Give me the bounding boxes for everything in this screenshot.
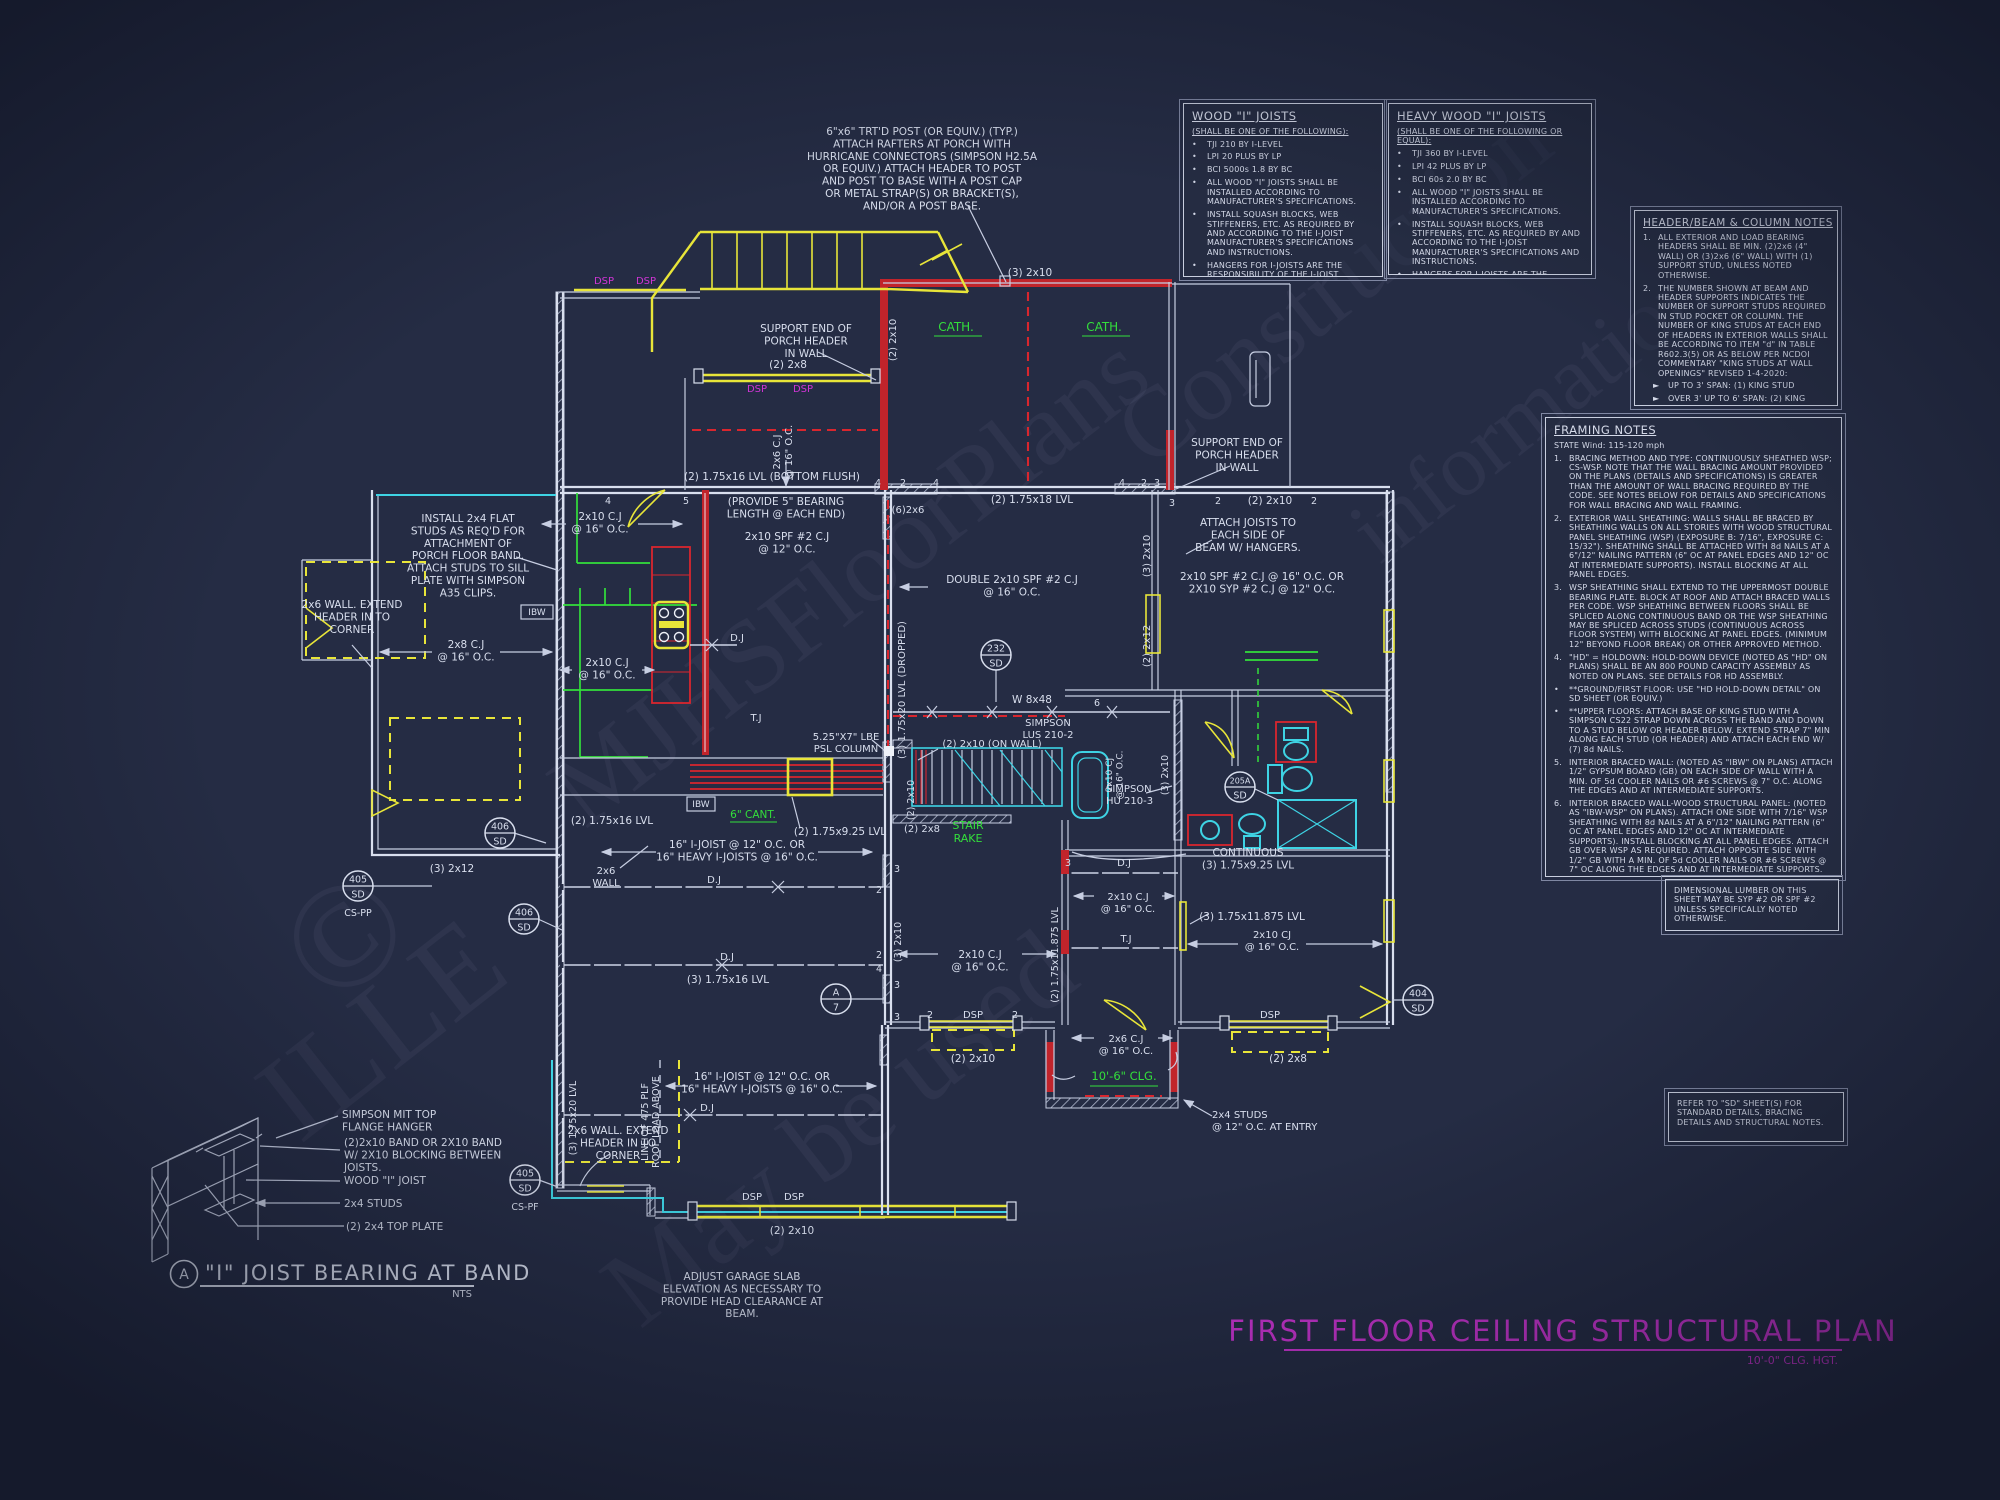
plan-label: DSP — [1260, 1010, 1280, 1021]
note-item: 2.EXTERIOR WALL SHEATHING: WALLS SHALL B… — [1554, 514, 1833, 580]
bubble-text: 232 — [987, 644, 1005, 655]
plan-label: 2x8 C.J@ 16" O.C. — [437, 639, 494, 663]
bubble-text: SD — [989, 659, 1002, 670]
bubble-text: 205A — [1230, 777, 1251, 786]
bubble-text: SD — [517, 923, 530, 934]
plan-label: CATH. — [1086, 320, 1122, 334]
plan-label: T.J — [749, 713, 761, 724]
detail-callout-bubble: 405SDCS-PF — [510, 1165, 540, 1213]
plan-label: STAIRRAKE — [952, 819, 984, 845]
plan-label: (3) 2x10 — [1008, 267, 1052, 279]
bubble-text: SD — [493, 837, 506, 848]
note-item: •INSTALL SQUASH BLOCKS, WEB STIFFENERS, … — [1397, 220, 1583, 267]
note-item: 2.THE NUMBER SHOWN AT BEAM AND HEADER SU… — [1643, 284, 1829, 378]
plan-label: 4 — [1119, 478, 1125, 489]
note-subtitle: (SHALL BE ONE OF THE FOLLOWING OR EQUAL)… — [1397, 127, 1583, 146]
note-list: •TJI 210 BY I-LEVEL•LPI 20 PLUS BY LP•BC… — [1192, 140, 1374, 278]
plan-label: 2 — [1311, 496, 1317, 507]
note-item: •HANGERS FOR I-JOISTS ARE THE RESPONSIBI… — [1192, 261, 1374, 277]
plan-label: 3 — [1169, 498, 1175, 509]
plan-label: (3) 2x10 — [893, 922, 904, 962]
notes-framing: FRAMING NOTES STATE Wind: 115-120 mph 1.… — [1545, 417, 1842, 877]
bubble-text: CS-PP — [344, 908, 372, 919]
plan-label: (3) 1.75x11.875 LVL — [1199, 911, 1305, 923]
note-item: 3.WSP SHEATHING SHALL EXTEND TO THE UPPE… — [1554, 583, 1833, 649]
plan-label: 3 — [894, 1012, 900, 1023]
plan-label: SUPPORT END OFPORCH HEADERIN WALL — [760, 323, 852, 360]
note-list: 1.ALL EXTERIOR AND LOAD BEARING HEADERS … — [1643, 233, 1829, 378]
sheet-title-sub: 10'-0" CLG. HGT. — [1747, 1354, 1838, 1367]
detail-scale: NTS — [452, 1289, 472, 1300]
plan-label: 2x10 SPF #2 C.J @ 16" O.C. OR2X10 SYP #2… — [1180, 571, 1344, 595]
plan-label: 16" I-JOIST @ 12" O.C. OR16" HEAVY I-JOI… — [681, 1071, 843, 1095]
note-item: ►UP TO 3' SPAN: (1) KING STUD — [1653, 381, 1829, 390]
note-item: •**UPPER FLOORS: ATTACH BASE OF KING STU… — [1554, 707, 1833, 754]
plan-label: (2) 1.75x9.25 LVL — [794, 826, 886, 838]
note-item: •BCI 60s 2.0 BY BC — [1397, 175, 1583, 184]
note-subtitle: (SHALL BE ONE OF THE FOLLOWING): — [1192, 127, 1374, 136]
bubble-text: 405 — [349, 875, 367, 886]
plan-label: (2) 2x8 — [1269, 1053, 1307, 1065]
plan-label: 5.25"X7" LBEPSL COLUMN — [813, 732, 880, 755]
detail-label: 2x4 STUDS — [344, 1198, 403, 1210]
plan-label: (2) 2x8 — [769, 359, 807, 371]
plan-label: (3) 2x12 — [430, 863, 474, 875]
plan-label: D.J — [707, 875, 721, 886]
note-item: •BCI 5000s 1.8 BY BC — [1192, 165, 1374, 174]
plan-label: 2 — [1141, 478, 1147, 489]
plan-label: (PROVIDE 5" BEARINGLENGTH @ EACH END) — [727, 496, 845, 520]
plan-label: (2) 2x8 — [904, 824, 940, 835]
detail-callout-bubble: 406SD — [509, 904, 539, 934]
notes-header-beam-column: HEADER/BEAM & COLUMN NOTES 1.ALL EXTERIO… — [1634, 210, 1838, 406]
note-item: 5.INTERIOR BRACED WALL: (NOTED AS "IBW" … — [1554, 758, 1833, 796]
note-item: 1.ALL EXTERIOR AND LOAD BEARING HEADERS … — [1643, 233, 1829, 280]
plan-label: IBW — [528, 608, 546, 618]
plan-label: 2 — [876, 885, 882, 896]
plan-label: 2x10 C.J@ 16" O.C. — [1101, 892, 1156, 915]
note-item: •ALL WOOD "I" JOISTS SHALL BE INSTALLED … — [1192, 178, 1374, 206]
plan-label: IBW — [692, 800, 710, 810]
note-dimensional-lumber: DIMENSIONAL LUMBER ON THIS SHEET MAY BE … — [1665, 879, 1839, 931]
bubble-text: 406 — [515, 908, 533, 919]
plan-label: (2) 2x10 — [906, 780, 917, 820]
plan-label: (2) 2x12 — [1142, 625, 1153, 667]
detail-callout-bubble: 406SD — [485, 818, 515, 848]
plan-label: CONTINUOUS(3) 1.75x9.25 LVL — [1202, 847, 1294, 871]
note-item: •ALL WOOD "I" JOISTS SHALL BE INSTALLED … — [1397, 188, 1583, 216]
plan-label: D.J — [730, 633, 744, 644]
plan-label: 6" CANT. — [730, 809, 776, 821]
plan-label: 5 — [683, 496, 689, 507]
plan-label: 2x6 C.J@ 16" O.C. — [1099, 1034, 1154, 1057]
note-text: REFER TO "SD" SHEET(S) FOR STANDARD DETA… — [1677, 1099, 1835, 1127]
plan-label: SUPPORT END OFPORCH HEADERIN WALL — [1191, 437, 1283, 474]
plan-label: DSP — [784, 1192, 804, 1203]
plan-label: (2) 2x10 — [1248, 495, 1292, 507]
note-list: •TJI 360 BY I-LEVEL•LPI 42 PLUS BY LP•BC… — [1397, 149, 1583, 275]
detail-title: "I" JOIST BEARING AT BAND — [205, 1261, 531, 1285]
plan-label: 2 — [927, 1010, 933, 1021]
plan-label: 4 — [875, 478, 881, 489]
plan-label: D.J — [720, 952, 734, 963]
plan-label: 10'-6" CLG. — [1091, 1069, 1156, 1083]
notes-wood-i-joists: WOOD "I" JOISTS (SHALL BE ONE OF THE FOL… — [1183, 103, 1383, 277]
drawing-sheet: ©MJHSFloorPlansConstructioninformationMa… — [0, 0, 2000, 1500]
plan-label: 2x10 C.J@ 16" O.C. — [951, 949, 1008, 973]
plan-label: 2 — [876, 950, 882, 961]
note-item: •TJI 210 BY I-LEVEL — [1192, 140, 1374, 149]
detail-label: WOOD "I" JOIST — [344, 1175, 427, 1187]
plan-label: 2x6 WALL. EXTENDHEADER IN TOCORNER — [302, 599, 403, 636]
plan-label: 4 — [876, 964, 882, 975]
note-item: •LPI 42 PLUS BY LP — [1397, 162, 1583, 171]
plan-label: D.J — [700, 1103, 714, 1114]
bubble-text: A — [833, 988, 840, 999]
plan-label: 2x10 CJ@ 16" O.C. — [1245, 930, 1300, 953]
plan-label: (3) 1.75x16 LVL — [687, 974, 769, 986]
sheet-title: FIRST FLOOR CEILING STRUCTURAL PLAN — [1228, 1314, 1897, 1348]
note-title: HEAVY WOOD "I" JOISTS — [1397, 110, 1583, 124]
bubble-text: 404 — [1409, 989, 1427, 1000]
note-item: 1.BRACING METHOD AND TYPE: CONTINUOUSLY … — [1554, 454, 1833, 511]
plan-label: T.J — [1119, 934, 1131, 945]
detail-callout-bubble: 205ASD — [1225, 772, 1255, 802]
plan-label: CATH. — [938, 320, 974, 334]
post-note: 6"x6" TRT'D POST (OR EQUIV.) (TYP.)ATTAC… — [807, 126, 1038, 212]
plan-label: DSP — [594, 276, 614, 287]
plan-label: 6 — [1094, 698, 1100, 709]
plan-label: DSP — [963, 1010, 983, 1021]
detail-callout-bubble: 232SD — [981, 640, 1011, 670]
plan-label: DSP — [793, 384, 813, 395]
plan-label: (2) 1.75x18 LVL — [991, 494, 1073, 506]
plan-label: (3) 1.75x20 LVL — [568, 1080, 579, 1155]
plan-label: 2 — [1215, 496, 1221, 507]
plan-label: 2 — [1012, 1010, 1018, 1021]
plan-label: (2) 2x10 — [770, 1225, 814, 1237]
plan-label: W 8x48 — [1012, 694, 1052, 706]
bubble-text: 7 — [833, 1003, 839, 1014]
note-item: •INSTALL SQUASH BLOCKS, WEB STIFFENERS, … — [1192, 210, 1374, 257]
plan-label: 3 — [1154, 478, 1160, 489]
note-list: 1.BRACING METHOD AND TYPE: CONTINUOUSLY … — [1554, 454, 1833, 875]
bubble-text: 405 — [516, 1169, 534, 1180]
bubble-text: SD — [351, 890, 364, 901]
note-subtitle: STATE Wind: 115-120 mph — [1554, 441, 1833, 450]
plan-label: 4 — [605, 496, 611, 507]
detail-bubble-letter: A — [179, 1267, 189, 1283]
plan-label: DSP — [742, 1192, 762, 1203]
plan-label: LINE OF 475 PLFROOF LOAD ABOVE — [640, 1076, 662, 1168]
plan-label: D.J — [1117, 858, 1131, 869]
detail-label: SIMPSON MIT TOPFLANGE HANGER — [342, 1109, 436, 1133]
note-item: ►OVER 3' UP TO 6' SPAN: (2) KING STUDS — [1653, 394, 1829, 406]
plan-label: (2) 2x10 — [951, 1053, 995, 1065]
detail-callout-bubble: 404SD — [1403, 985, 1433, 1015]
plan-label: (3) 2x10 — [1160, 755, 1171, 795]
bubble-text: SD — [518, 1184, 531, 1195]
bubble-text: 406 — [491, 822, 509, 833]
plan-label: 3 — [894, 864, 900, 875]
plan-label: 2x10 C.J@ 16" O.C. — [571, 511, 628, 535]
bubble-text: SD — [1233, 791, 1246, 802]
plan-label: ATTACH JOISTS TOEACH SIDE OFBEAM W/ HANG… — [1195, 517, 1301, 554]
plan-label: (3) 2x10 — [1142, 535, 1153, 577]
plan-label: (3) 1.75x20 LVL (DROPPED) — [897, 621, 908, 759]
plan-label: 16" I-JOIST @ 12" O.C. OR16" HEAVY I-JOI… — [656, 839, 818, 863]
detail-label: (2) 2x4 TOP PLATE — [346, 1221, 443, 1233]
note-title: HEADER/BEAM & COLUMN NOTES — [1643, 217, 1829, 229]
plan-label: (6)2x6 — [892, 505, 925, 516]
plan-label: (2) 1.75x16 LVL — [571, 815, 653, 827]
note-item: •**GROUND/FIRST FLOOR: USE "HD HOLD-DOWN… — [1554, 685, 1833, 704]
plan-label: 4 — [933, 478, 939, 489]
plan-label: DSP — [636, 276, 656, 287]
note-list: ►UP TO 3' SPAN: (1) KING STUD►OVER 3' UP… — [1653, 381, 1829, 406]
plan-label: 2 — [900, 478, 906, 489]
note-item: 6.INTERIOR BRACED WALL-WOOD STRUCTURAL P… — [1554, 799, 1833, 875]
plan-label: 3 — [894, 980, 900, 991]
note-refer-sd: REFER TO "SD" SHEET(S) FOR STANDARD DETA… — [1668, 1092, 1844, 1142]
notes-heavy-wood-i-joists: HEAVY WOOD "I" JOISTS (SHALL BE ONE OF T… — [1388, 103, 1592, 275]
detail-callout-bubble: A7 — [821, 984, 851, 1014]
plan-label: 2x4 STUDS@ 12" O.C. AT ENTRY — [1212, 1110, 1318, 1133]
plan-label: 2x10 C.J@ 16" O.C. — [578, 657, 635, 681]
note-item: 4."HD" = HOLDOWN: HOLD-DOWN DEVICE (NOTE… — [1554, 653, 1833, 681]
plan-label: 2x6WALL — [592, 866, 620, 889]
plan-label: DSP — [747, 384, 767, 395]
plan-label: SIMPSONLUS 210-2 — [1023, 718, 1074, 741]
bubble-text: CS-PF — [511, 1202, 538, 1213]
note-item: •LPI 20 PLUS BY LP — [1192, 152, 1374, 161]
plan-label: INSTALL 2x4 FLATSTUDS AS REQ'D FORATTACH… — [407, 513, 529, 599]
detail-label: (2)2x10 BAND OR 2X10 BANDW/ 2X10 BLOCKIN… — [343, 1137, 502, 1174]
plan-label: (2) 2x10 — [888, 319, 899, 361]
plan-label: (2) 1.75x16 LVL (BOTTOM FLUSH) — [684, 471, 860, 483]
plan-label: (2) 2x10 (ON WALL) — [942, 739, 1041, 750]
note-item: •HANGERS FOR I-JOISTS ARE THE RESPONSIBI… — [1397, 270, 1583, 275]
note-text: DIMENSIONAL LUMBER ON THIS SHEET MAY BE … — [1674, 886, 1830, 924]
plan-label: DOUBLE 2x10 SPF #2 C.J@ 16" O.C. — [946, 574, 1078, 598]
plan-label: (2) 1.75x11.875 LVL — [1050, 907, 1061, 1003]
bubble-text: SD — [1411, 1004, 1424, 1015]
plan-label: 3 — [1065, 858, 1071, 869]
note-title: WOOD "I" JOISTS — [1192, 110, 1374, 124]
note-item: •TJI 360 BY I-LEVEL — [1397, 149, 1583, 158]
note-title: FRAMING NOTES — [1554, 424, 1833, 438]
